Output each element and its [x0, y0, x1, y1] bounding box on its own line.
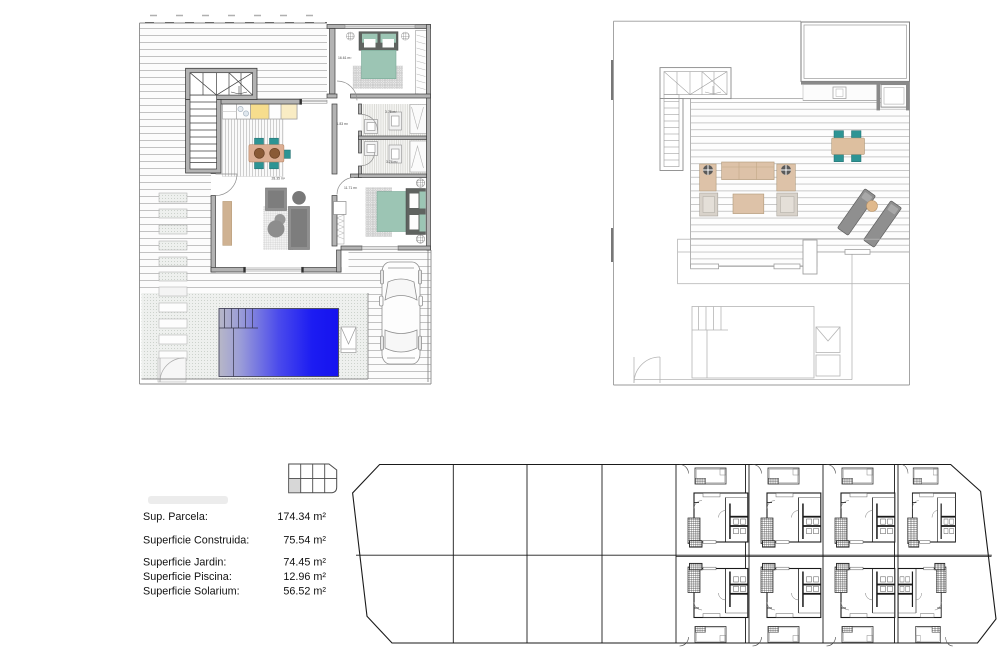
- svg-text:Superficie Jardin:: Superficie Jardin:: [143, 557, 226, 569]
- svg-text:56.52 m²: 56.52 m²: [283, 586, 326, 598]
- svg-text:1.83 m²: 1.83 m²: [337, 122, 349, 126]
- svg-text:3.76 m²: 3.76 m²: [386, 160, 398, 164]
- svg-text:75.54 m²: 75.54 m²: [283, 535, 326, 547]
- svg-text:Superficie Solarium:: Superficie Solarium:: [143, 586, 240, 598]
- svg-text:Sup. Parcela:: Sup. Parcela:: [143, 511, 208, 523]
- svg-text:74.45 m²: 74.45 m²: [283, 557, 326, 569]
- svg-text:28.35 m²: 28.35 m²: [272, 177, 286, 181]
- svg-text:Superficie Piscina:: Superficie Piscina:: [143, 571, 232, 583]
- svg-text:174.34 m²: 174.34 m²: [277, 511, 326, 523]
- svg-text:3.75 m²: 3.75 m²: [385, 110, 397, 114]
- svg-text:16.61 m²: 16.61 m²: [338, 56, 352, 60]
- svg-text:Superficie Construida:: Superficie Construida:: [143, 535, 249, 547]
- svg-text:11.71 m²: 11.71 m²: [344, 186, 358, 190]
- svg-text:12.96 m²: 12.96 m²: [283, 571, 326, 583]
